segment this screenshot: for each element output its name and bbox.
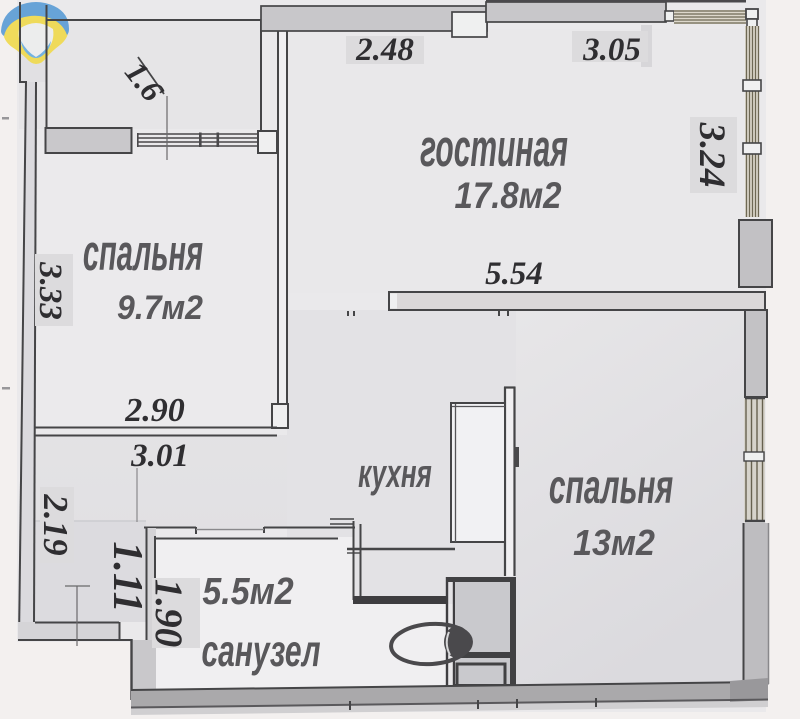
svg-text:спальня: спальня (83, 225, 203, 281)
svg-text:9.7м2: 9.7м2 (117, 289, 203, 327)
svg-text:3.01: 3.01 (130, 438, 189, 474)
svg-text:кухня: кухня (358, 451, 432, 496)
svg-text:спальня: спальня (549, 461, 673, 514)
svg-text:2.19: 2.19 (36, 493, 75, 555)
svg-text:гостиная: гостиная (420, 119, 568, 178)
svg-text:13м2: 13м2 (573, 523, 655, 563)
svg-text:1.11: 1.11 (104, 541, 150, 612)
svg-text:3.05: 3.05 (582, 32, 641, 68)
svg-text:санузел: санузел (201, 626, 320, 675)
svg-text:1.90: 1.90 (147, 579, 190, 647)
svg-text:2.48: 2.48 (355, 32, 414, 68)
svg-text:3.33: 3.33 (32, 261, 68, 320)
svg-text:5.5м2: 5.5м2 (202, 569, 293, 612)
svg-text:3.24: 3.24 (691, 122, 732, 188)
svg-text:2.90: 2.90 (124, 392, 185, 429)
svg-text:5.54: 5.54 (485, 256, 543, 292)
svg-text:17.8м2: 17.8м2 (455, 175, 562, 216)
